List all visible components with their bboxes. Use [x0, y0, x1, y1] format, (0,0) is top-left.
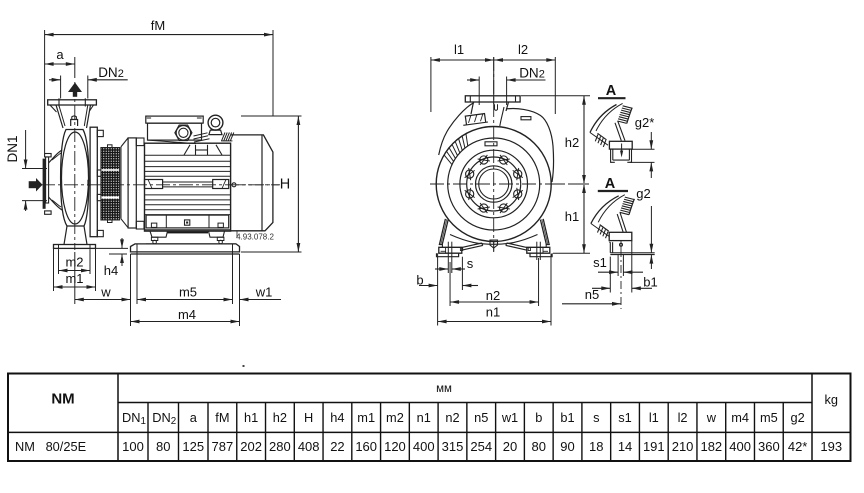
svg-text:b: b: [535, 410, 542, 425]
svg-text:DN1: DN1: [5, 135, 20, 162]
svg-text:m5: m5: [179, 285, 197, 300]
svg-text:160: 160: [355, 439, 377, 454]
svg-text:m1: m1: [357, 410, 375, 425]
svg-text:H: H: [304, 410, 313, 425]
svg-text:202: 202: [240, 439, 262, 454]
svg-text:l2: l2: [678, 410, 688, 425]
svg-text:h2: h2: [273, 410, 287, 425]
svg-text:400: 400: [413, 439, 435, 454]
svg-text:a: a: [56, 47, 64, 62]
svg-text:H: H: [280, 177, 290, 193]
svg-text:h4: h4: [104, 263, 118, 278]
svg-text:191: 191: [643, 439, 665, 454]
svg-text:m5: m5: [760, 410, 778, 425]
svg-text:b: b: [416, 273, 423, 288]
svg-text:210: 210: [672, 439, 694, 454]
svg-text:s1: s1: [593, 255, 607, 270]
svg-text:n5: n5: [585, 287, 599, 302]
svg-text:A: A: [606, 83, 617, 99]
svg-text:NM 80/25E: NM 80/25E: [15, 439, 86, 454]
svg-text:fM: fM: [215, 410, 229, 425]
svg-text:n1: n1: [486, 305, 500, 320]
svg-text:80: 80: [156, 439, 170, 454]
svg-text:g2*: g2*: [635, 115, 655, 130]
svg-text:DN2: DN2: [519, 66, 545, 81]
svg-text:l1: l1: [454, 42, 464, 57]
svg-text:h1: h1: [565, 209, 579, 224]
svg-text:22: 22: [330, 439, 344, 454]
svg-text:4.93.078.2: 4.93.078.2: [236, 233, 274, 242]
svg-text:мм: мм: [436, 383, 452, 395]
svg-text:280: 280: [269, 439, 291, 454]
svg-text:w1: w1: [501, 410, 518, 425]
svg-text:n5: n5: [474, 410, 488, 425]
svg-text:w1: w1: [255, 285, 273, 300]
svg-text:90: 90: [560, 439, 574, 454]
svg-text:100: 100: [122, 439, 144, 454]
svg-text:h4: h4: [330, 410, 344, 425]
svg-text:DN2: DN2: [98, 65, 124, 80]
svg-text:g2: g2: [791, 410, 805, 425]
svg-text:m2: m2: [386, 410, 404, 425]
svg-text:14: 14: [618, 439, 632, 454]
svg-text:fM: fM: [151, 18, 165, 33]
svg-text:l1: l1: [649, 410, 659, 425]
svg-text:l2: l2: [518, 42, 528, 57]
svg-text:193: 193: [820, 439, 842, 454]
svg-text:254: 254: [470, 439, 492, 454]
svg-text:m4: m4: [731, 410, 749, 425]
svg-text:m4: m4: [178, 307, 196, 322]
svg-text:A: A: [605, 176, 616, 192]
svg-text:s1: s1: [618, 410, 632, 425]
svg-text:42*: 42*: [788, 439, 808, 454]
svg-text:18: 18: [589, 439, 603, 454]
svg-text:80: 80: [532, 439, 546, 454]
svg-text:360: 360: [758, 439, 780, 454]
svg-text:125: 125: [182, 439, 204, 454]
svg-text:n1: n1: [417, 410, 431, 425]
svg-text:s: s: [593, 410, 599, 425]
svg-text:n2: n2: [445, 410, 459, 425]
svg-text:400: 400: [729, 439, 751, 454]
svg-text:787: 787: [212, 439, 234, 454]
svg-text:120: 120: [384, 439, 406, 454]
svg-text:n2: n2: [486, 288, 500, 303]
svg-text:b1: b1: [643, 275, 657, 290]
svg-text:kg: kg: [824, 392, 838, 407]
svg-text:h1: h1: [244, 410, 258, 425]
svg-text:a: a: [190, 410, 198, 425]
svg-text:g2: g2: [636, 186, 650, 201]
svg-text:s: s: [467, 256, 474, 271]
svg-text:w: w: [100, 285, 111, 300]
svg-text:182: 182: [700, 439, 722, 454]
svg-text:w: w: [706, 410, 717, 425]
svg-text:315: 315: [442, 439, 464, 454]
svg-text:b1: b1: [560, 410, 574, 425]
svg-text:408: 408: [298, 439, 320, 454]
svg-text:20: 20: [503, 439, 517, 454]
svg-text:NM: NM: [51, 391, 74, 408]
svg-text:h2: h2: [565, 135, 579, 150]
